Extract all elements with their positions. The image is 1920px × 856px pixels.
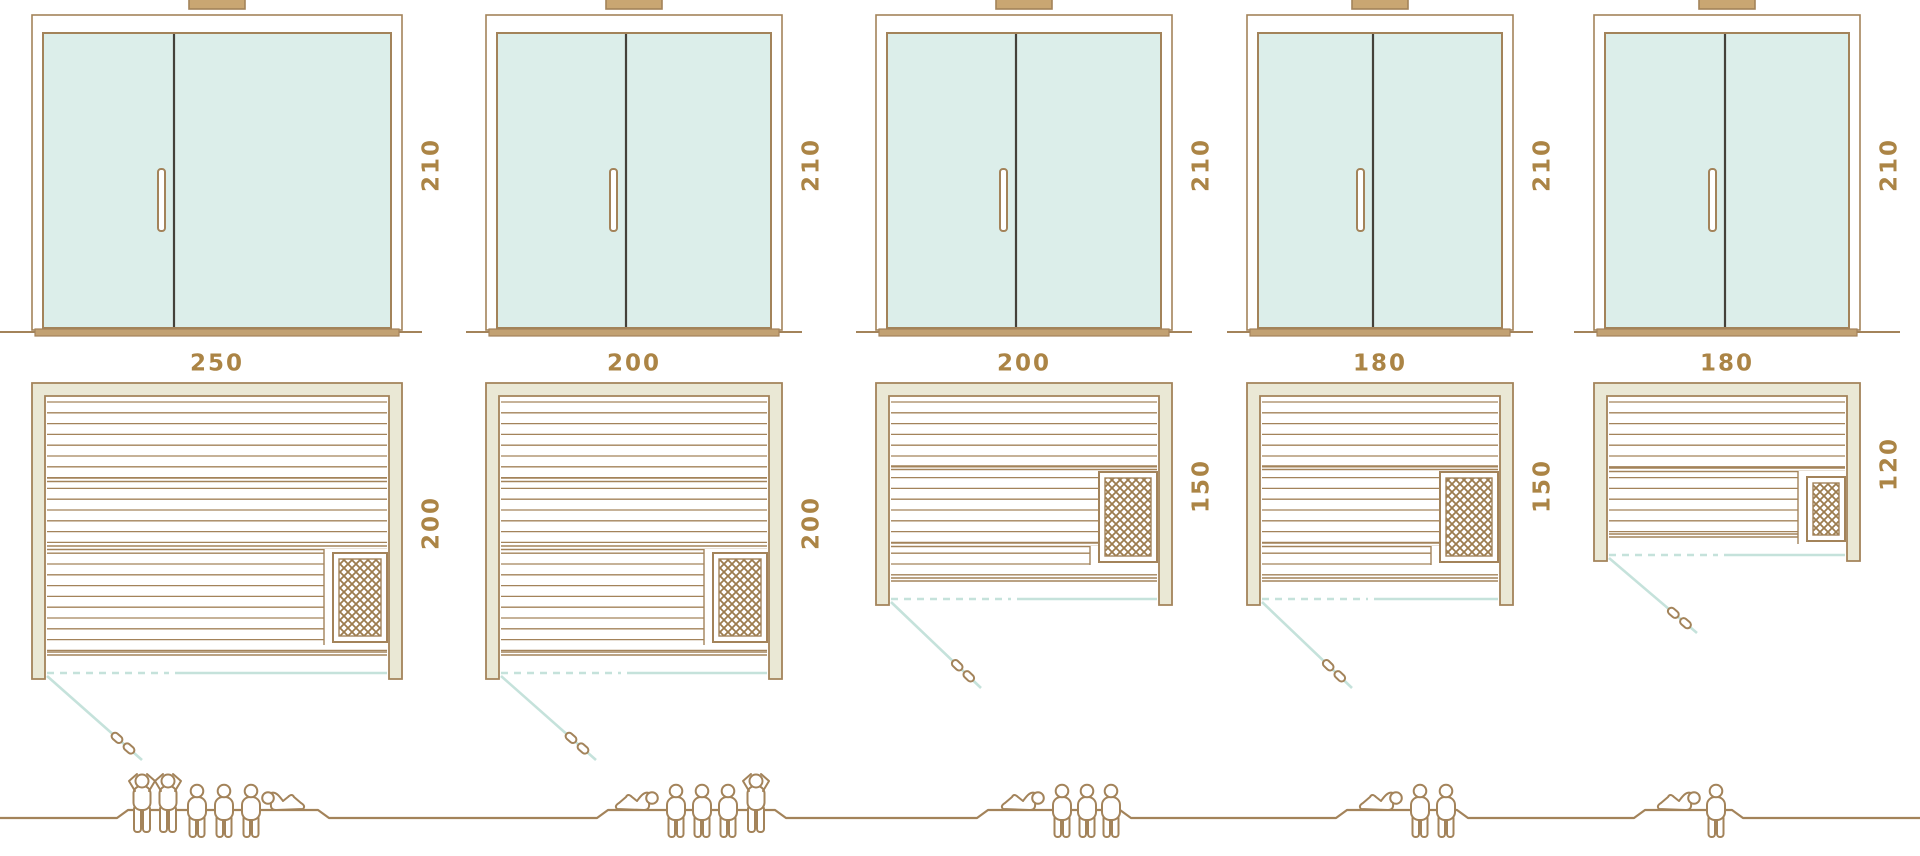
- door-handle-icon: [1357, 169, 1364, 231]
- depth-dimension-label: 150: [1532, 459, 1555, 513]
- sauna-5-plan: [1594, 383, 1860, 633]
- person-seated-icon: [1053, 785, 1071, 837]
- heater-icon: [1807, 477, 1845, 541]
- sauna-5-elevation: [1574, 0, 1900, 336]
- person-seated-icon: [693, 785, 711, 837]
- person-lying-icon: [1658, 792, 1700, 810]
- person-lying-icon: [262, 792, 304, 810]
- person-seated-icon: [1078, 785, 1096, 837]
- person-seated-icon: [719, 785, 737, 837]
- person-seated-icon: [1707, 785, 1725, 837]
- sauna-2-elevation: [466, 0, 802, 336]
- heater-icon: [713, 553, 767, 642]
- depth-dimension-label: 150: [1191, 459, 1214, 513]
- depth-dimension-label: 120: [1879, 437, 1902, 491]
- chimney-icon: [1352, 0, 1408, 9]
- sauna-2-capacity-figures: [616, 774, 769, 837]
- width-dimension-label: 200: [997, 353, 1051, 376]
- sauna-1-plan: [32, 383, 402, 760]
- sauna-1-elevation: [0, 0, 422, 336]
- glass-front: [1258, 33, 1502, 328]
- door-sill: [35, 329, 399, 336]
- door-sill: [1597, 329, 1857, 336]
- sauna-2-plan: [486, 383, 782, 760]
- glass-front: [497, 33, 771, 328]
- width-dimension-label: 200: [607, 353, 661, 376]
- sauna-4-plan: [1247, 383, 1513, 688]
- door-handle-icon: [610, 169, 617, 231]
- capacity-ground-line: [0, 810, 1920, 818]
- chimney-icon: [996, 0, 1052, 9]
- glass-front: [1605, 33, 1849, 328]
- person-standing-icon: [743, 774, 769, 832]
- person-standing-icon: [129, 774, 155, 832]
- depth-dimension-label: 200: [421, 496, 444, 550]
- person-lying-icon: [616, 792, 658, 810]
- width-dimension-label: 180: [1700, 353, 1754, 376]
- heater-icon: [333, 553, 387, 642]
- sauna-3-plan: [876, 383, 1172, 688]
- person-seated-icon: [1437, 785, 1455, 837]
- person-lying-icon: [1002, 792, 1044, 810]
- glass-front: [43, 33, 391, 328]
- door-sill: [489, 329, 779, 336]
- height-dimension-label: 210: [801, 138, 824, 192]
- person-lying-icon: [1360, 792, 1402, 810]
- chimney-icon: [606, 0, 662, 9]
- heater-icon: [1440, 472, 1498, 562]
- person-seated-icon: [215, 785, 233, 837]
- door-swing-icon: [501, 676, 596, 760]
- sauna-size-diagram: 210 250 200 210 200 200 210 200 150 210 …: [0, 0, 1920, 856]
- person-seated-icon: [188, 785, 206, 837]
- door-handle-icon: [158, 169, 165, 231]
- person-seated-icon: [1102, 785, 1120, 837]
- door-handle-icon: [1709, 169, 1716, 231]
- door-sill: [1250, 329, 1510, 336]
- height-dimension-label: 210: [1191, 138, 1214, 192]
- heater-icon: [1099, 472, 1157, 562]
- door-sill: [879, 329, 1169, 336]
- door-swing-icon: [47, 676, 142, 760]
- height-dimension-label: 210: [1879, 138, 1902, 192]
- width-dimension-label: 250: [190, 353, 244, 376]
- glass-front: [887, 33, 1161, 328]
- height-dimension-label: 210: [1532, 138, 1555, 192]
- height-dimension-label: 210: [421, 138, 444, 192]
- door-swing-icon: [891, 602, 981, 688]
- person-standing-icon: [155, 774, 181, 832]
- sauna-3-elevation: [856, 0, 1192, 336]
- capacity-row: [0, 774, 1920, 837]
- sauna-1-capacity-figures: [129, 774, 304, 837]
- door-handle-icon: [1000, 169, 1007, 231]
- chimney-icon: [1699, 0, 1755, 9]
- sauna-4-elevation: [1227, 0, 1533, 336]
- person-seated-icon: [667, 785, 685, 837]
- person-seated-icon: [242, 785, 260, 837]
- depth-dimension-label: 200: [801, 496, 824, 550]
- sauna-diagram-canvas: [0, 0, 1920, 856]
- door-swing-icon: [1609, 558, 1697, 633]
- person-seated-icon: [1411, 785, 1429, 837]
- width-dimension-label: 180: [1353, 353, 1407, 376]
- chimney-icon: [189, 0, 245, 9]
- door-swing-icon: [1262, 602, 1352, 688]
